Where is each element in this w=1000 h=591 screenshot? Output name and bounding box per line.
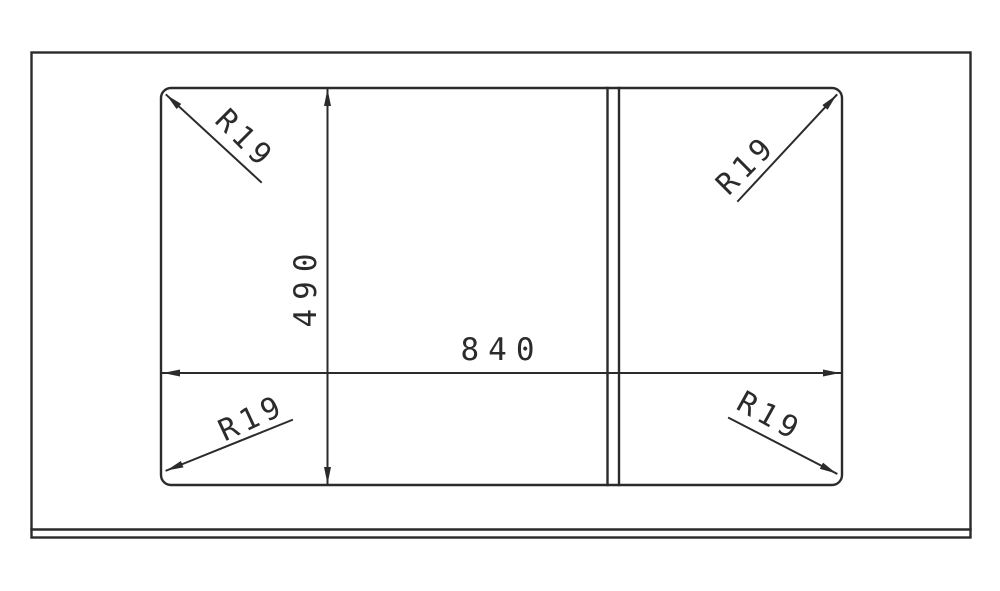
technical-drawing: 840 490 R19 R19 R19 R19 bbox=[0, 0, 1000, 591]
height-dimension-label: 490 bbox=[288, 245, 324, 328]
radius-label-bottom-left: R19 bbox=[213, 388, 290, 449]
width-dimension-label: 840 bbox=[461, 332, 544, 368]
cutout-dimension-diagram: 840 490 R19 R19 R19 R19 bbox=[0, 0, 1000, 591]
radius-label-top-left: R19 bbox=[208, 102, 282, 176]
worktop-panel-outline bbox=[32, 53, 971, 538]
